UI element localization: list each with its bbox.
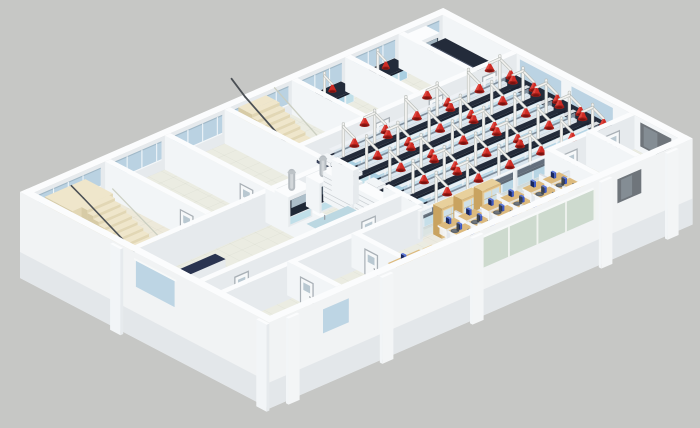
floorplan-render-stage: Isometric 3D cutaway rendering of a labo… (0, 0, 700, 428)
laboratory-floorplan-3d-scene (0, 0, 700, 428)
